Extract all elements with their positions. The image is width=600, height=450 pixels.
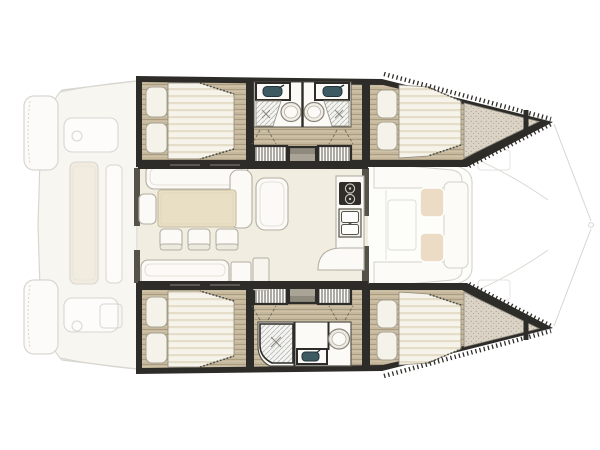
starboard-aft-bed-mattress [168, 291, 234, 367]
shower-icon [260, 324, 293, 363]
floor-plan-page: Catamaran interior layout floor plan Cat… [0, 0, 600, 450]
port-fwd-pillow-2 [377, 122, 397, 150]
saloon-side-seat [139, 194, 156, 224]
starboard-bulkhead-aft [246, 288, 254, 371]
saloon-wall-aft-bottom [134, 250, 140, 283]
dining-chairs [160, 229, 238, 250]
port-aft-pillow-1 [146, 87, 167, 117]
starboard-bulkhead-fwd [362, 287, 370, 370]
dining-area [158, 190, 238, 250]
starboard-hull [136, 275, 553, 376]
forward-cockpit-lounge-right [444, 182, 468, 268]
forward-cockpit-cushion-2 [420, 233, 444, 262]
floor-plan-canvas: Catamaran interior layout floor plan [0, 0, 600, 450]
port-hull [136, 74, 553, 175]
starboard-forward-cabin [377, 292, 461, 365]
saloon [134, 161, 369, 290]
port-aft-pillow-2 [146, 123, 167, 153]
port-fwd-pillow-1 [377, 90, 397, 118]
cockpit-table [70, 162, 98, 284]
port-aft-bed-mattress [168, 83, 234, 159]
dining-table [158, 190, 236, 227]
starboard-bathroom [258, 322, 351, 366]
port-bulkhead-aft [246, 79, 254, 162]
sink-basin-icon [342, 212, 359, 223]
port-bathrooms [254, 82, 351, 127]
port-forward-cabin [377, 85, 461, 158]
starboard-fwd-pillow-1 [377, 332, 397, 360]
sink-basin-icon [342, 225, 359, 235]
cockpit-bench [106, 165, 122, 283]
bowsprit-fitting [589, 223, 594, 228]
starboard-aft-pillow-2 [146, 297, 167, 327]
forestay-line-port [554, 124, 591, 221]
forward-cockpit-cushion-1 [420, 188, 444, 217]
port-fwd-bed-mattress [399, 85, 461, 158]
port-bulkhead-fwd [362, 80, 370, 163]
starboard-fwd-pillow-2 [377, 300, 397, 328]
forward-cockpit [366, 158, 472, 292]
starboard-aft-pillow-1 [146, 333, 167, 363]
starboard-fwd-bed-mattress [399, 292, 461, 365]
forestay-line-starboard [554, 229, 591, 326]
